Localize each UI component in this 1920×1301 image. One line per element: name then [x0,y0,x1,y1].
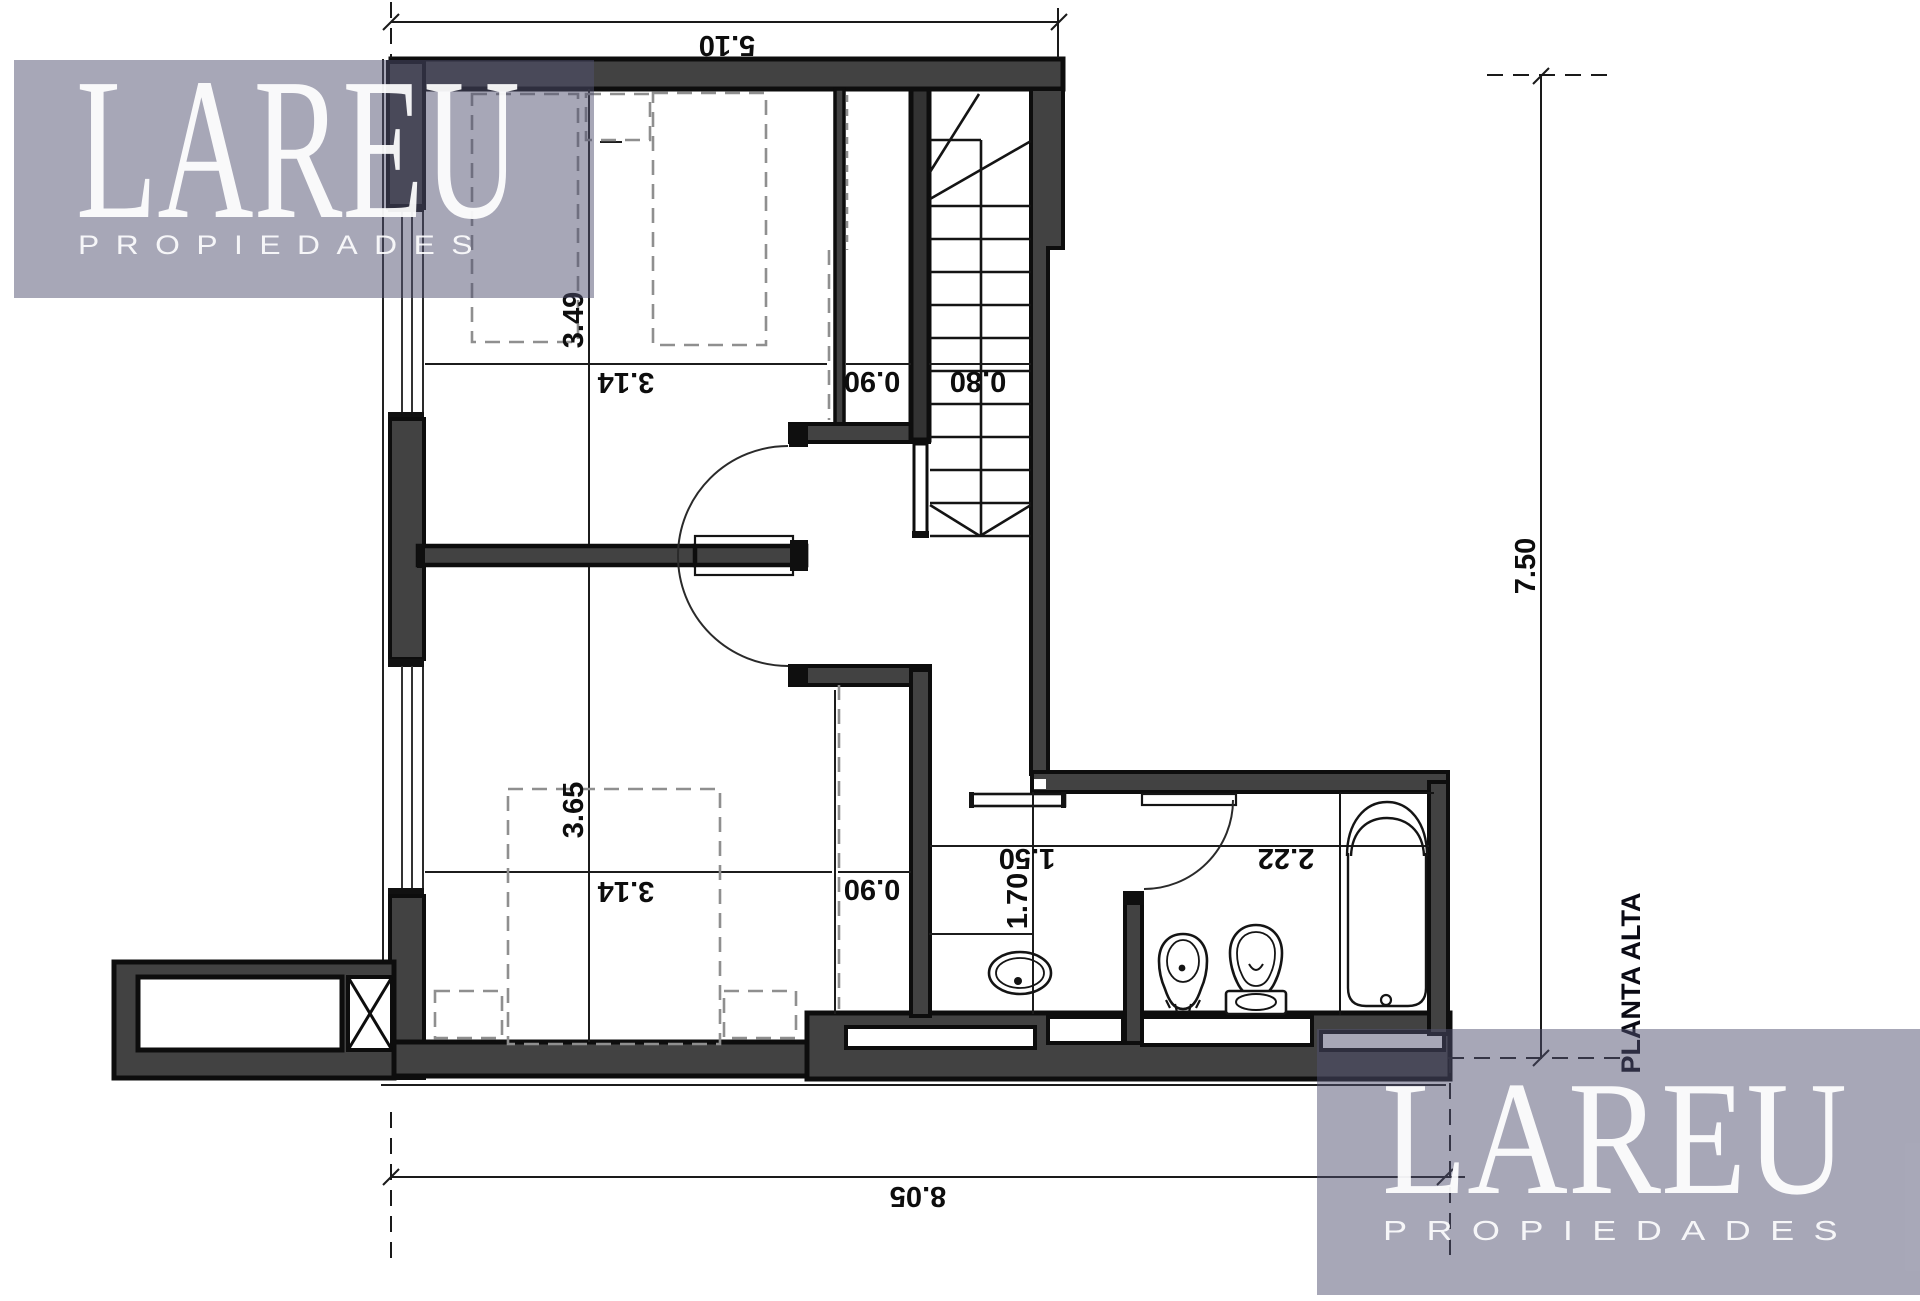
svg-text:5.10: 5.10 [699,29,755,61]
svg-text:LAREU: LAREU [76,36,520,261]
svg-text:2.22: 2.22 [1258,842,1314,874]
svg-text:3.14: 3.14 [598,366,654,398]
svg-text:1.70: 1.70 [1002,873,1034,929]
svg-text:3.14: 3.14 [598,875,654,907]
svg-text:PROPIEDADES: PROPIEDADES [1383,1215,1857,1246]
svg-text:8.05: 8.05 [890,1180,946,1212]
svg-text:1.50: 1.50 [999,842,1055,874]
svg-text:0.90: 0.90 [844,365,900,397]
svg-text:PROPIEDADES: PROPIEDADES [78,230,489,260]
svg-text:3.65: 3.65 [558,782,590,838]
svg-text:7.50: 7.50 [1510,538,1542,594]
svg-text:LAREU: LAREU [1382,1049,1847,1229]
svg-text:3.49: 3.49 [558,292,590,348]
svg-text:0.90: 0.90 [844,873,900,905]
svg-text:0.80: 0.80 [950,365,1006,397]
